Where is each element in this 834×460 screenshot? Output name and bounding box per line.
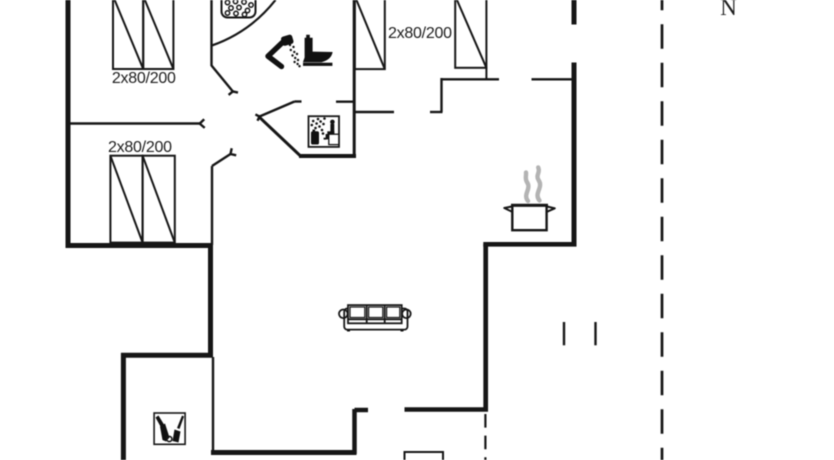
svg-text:2x80/200: 2x80/200	[388, 25, 452, 42]
svg-text:2x80/200: 2x80/200	[112, 70, 176, 87]
svg-text:2x80/200: 2x80/200	[108, 139, 172, 156]
svg-text:N: N	[720, 0, 737, 20]
